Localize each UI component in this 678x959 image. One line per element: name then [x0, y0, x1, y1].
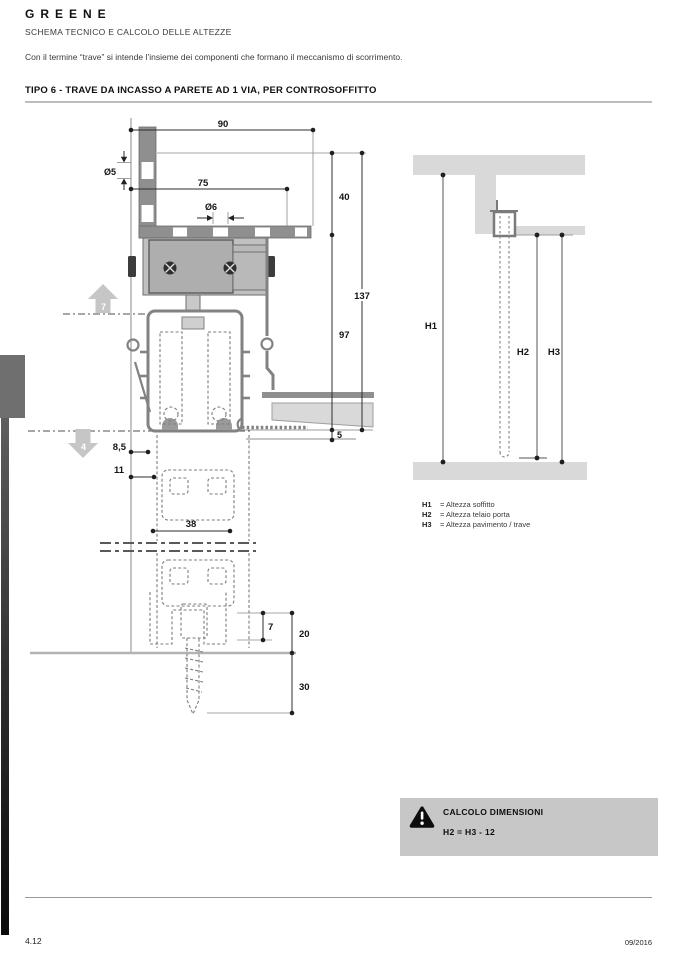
- legend-h3-text: = Altezza pavimento / trave: [440, 520, 530, 529]
- intro-text: Con il termine “trave” si intende l’insi…: [25, 52, 402, 62]
- door-panel-dashed: [500, 216, 509, 457]
- dim-o5: Ø5: [104, 167, 116, 177]
- dim-38: 38: [186, 519, 197, 530]
- calc-title: CALCOLO DIMENSIONI: [443, 807, 543, 817]
- footer-page-number: 4.12: [25, 936, 42, 946]
- section-title: TIPO 6 - TRAVE DA INCASSO A PARETE AD 1 …: [25, 85, 377, 96]
- height-diagram: H1 H2 H3 H1 = Altezza soffitto H2 = Alte…: [413, 155, 587, 529]
- dim-75: 75: [198, 178, 209, 189]
- legend-h2-key: H2: [422, 510, 432, 519]
- dim-97: 97: [339, 330, 350, 341]
- catalog-page: GREENE SCHEMA TECNICO E CALCOLO DELLE AL…: [0, 0, 678, 959]
- ceiling-panel: [272, 403, 373, 427]
- calc-formula: H2 = H3 - 12: [443, 827, 495, 837]
- legend-h2-text: = Altezza telaio porta: [440, 510, 511, 519]
- page-subtitle: SCHEMA TECNICO E CALCOLO DELLE ALTEZZE: [25, 27, 232, 37]
- adjust-up-value: 7: [101, 302, 106, 312]
- footer-rule: [25, 897, 652, 898]
- screw-icon: [224, 262, 237, 275]
- brand-logo: GREENE: [25, 7, 112, 21]
- dim-o6: Ø6: [205, 202, 217, 212]
- dim-30: 30: [299, 682, 310, 693]
- height-legend: H1 = Altezza soffitto H2 = Altezza telai…: [422, 500, 530, 529]
- legend-h3-key: H3: [422, 520, 432, 529]
- wall-bracket-profile: [139, 127, 311, 238]
- floor-screw-head: [181, 604, 207, 638]
- label-h1: H1: [425, 321, 438, 332]
- dim-7: 7: [268, 622, 273, 633]
- dim-40: 40: [339, 192, 350, 203]
- calc-dimensions-box: CALCOLO DIMENSIONI H2 = H3 - 12: [400, 798, 658, 856]
- footer-date: 09/2016: [625, 938, 652, 947]
- section-rule: [25, 101, 652, 103]
- adjust-arrow-up-icon: 7: [88, 284, 118, 313]
- floor-slab: [413, 462, 587, 480]
- dim-20: 20: [299, 629, 310, 640]
- dim-5: 5: [337, 430, 342, 440]
- warning-triangle-icon: [409, 805, 435, 829]
- adjust-down-value: 4: [81, 442, 86, 452]
- dim-137: 137: [354, 291, 370, 302]
- adjust-arrow-down-icon: 4: [68, 429, 98, 458]
- dim-90: 90: [218, 119, 229, 130]
- carriage-assembly: [128, 238, 275, 313]
- track-profile: [140, 311, 250, 431]
- dim-8-5: 8,5: [113, 442, 127, 453]
- label-h3: H3: [548, 347, 560, 358]
- suspended-ceiling: [514, 226, 585, 235]
- label-h2: H2: [517, 347, 529, 358]
- ceiling-slab: [413, 155, 585, 175]
- legend-h1-text: = Altezza soffitto: [440, 500, 495, 509]
- dim-11: 11: [114, 465, 125, 476]
- screw-icon: [164, 262, 177, 275]
- legend-h1-key: H1: [422, 500, 432, 509]
- technical-drawing-svg: 7 4 90 Ø5: [0, 105, 678, 745]
- section-drawing: 7 4 90 Ø5: [28, 118, 374, 715]
